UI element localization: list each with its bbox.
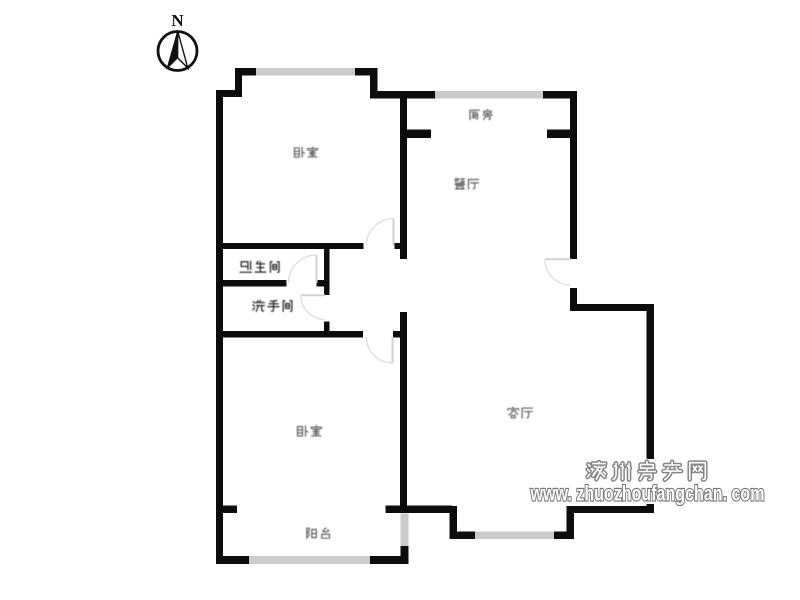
svg-text:N: N xyxy=(171,11,184,30)
svg-text:www. zhuozhoufangchan. com: www. zhuozhoufangchan. com xyxy=(530,481,765,505)
